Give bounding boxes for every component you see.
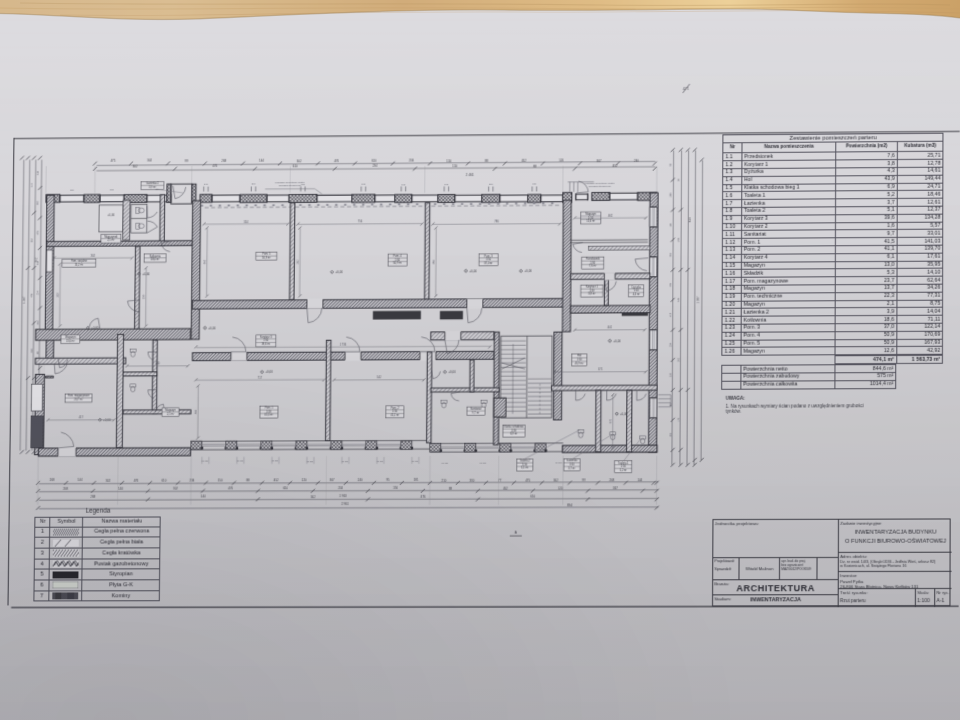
svg-text:150: 150 [447, 159, 452, 163]
svg-text:462: 462 [608, 214, 613, 218]
svg-text:150: 150 [70, 189, 74, 191]
svg-text:4,3 m²: 4,3 m² [633, 292, 641, 296]
svg-text:610: 610 [30, 348, 33, 353]
svg-text:1 387: 1 387 [22, 296, 26, 304]
svg-text:452: 452 [521, 159, 526, 163]
svg-text:Przedsionek: Przedsionek [586, 257, 601, 261]
svg-text:schodami strychowymi: schodami strychowymi [279, 184, 301, 187]
svg-text:50,9 m²: 50,9 m² [393, 261, 402, 265]
svg-text:475: 475 [111, 159, 116, 163]
svg-text:Korytarz 1: Korytarz 1 [586, 285, 598, 289]
svg-text:99: 99 [677, 178, 680, 181]
svg-text:+0,00: +0,00 [620, 412, 628, 416]
svg-text:234: 234 [190, 478, 195, 482]
svg-text:1:50: 1:50 [486, 257, 492, 261]
svg-text:542: 542 [377, 376, 382, 380]
svg-text:417: 417 [79, 416, 84, 420]
svg-text:3,8 m²: 3,8 m² [588, 292, 596, 296]
svg-text:245: 245 [532, 184, 536, 186]
svg-text:144: 144 [201, 495, 206, 499]
svg-text:90 170: 90 170 [202, 461, 209, 463]
svg-text:Magazyn: Magazyn [65, 335, 76, 339]
svg-text:302: 302 [91, 254, 96, 258]
svg-text:302: 302 [677, 357, 680, 362]
svg-text:240: 240 [634, 159, 639, 163]
svg-text:367: 367 [613, 486, 618, 490]
svg-text:268: 268 [669, 192, 672, 197]
svg-text:120: 120 [559, 159, 564, 163]
svg-text:302: 302 [147, 159, 152, 163]
svg-text:9,7 m²: 9,7 m² [472, 410, 480, 414]
svg-text:476: 476 [677, 417, 680, 422]
svg-text:1:50: 1:50 [589, 288, 595, 292]
svg-text:+0,00: +0,00 [469, 269, 477, 273]
svg-text:90 170: 90 170 [377, 461, 384, 463]
svg-text:144: 144 [30, 183, 33, 188]
svg-text:A: A [515, 531, 518, 535]
svg-text:302: 302 [106, 478, 111, 482]
svg-text:362: 362 [202, 259, 206, 264]
svg-text:99: 99 [185, 159, 189, 163]
svg-text:181: 181 [413, 478, 418, 482]
svg-text:Toaleta 1: Toaleta 1 [618, 461, 629, 465]
svg-text:1:50: 1:50 [392, 409, 398, 413]
svg-text:362: 362 [295, 259, 299, 264]
svg-text:302: 302 [30, 238, 33, 243]
svg-text:Łazienka: Łazienka [567, 459, 578, 463]
svg-text:476: 476 [420, 495, 425, 499]
svg-text:43,9 m²: 43,9 m² [575, 361, 584, 365]
svg-text:476: 476 [213, 164, 218, 168]
svg-text:88: 88 [533, 164, 537, 168]
svg-text:268: 268 [91, 495, 96, 499]
svg-text:3,7 m²: 3,7 m² [568, 466, 576, 470]
svg-text:302: 302 [553, 478, 558, 482]
svg-text:144: 144 [259, 159, 264, 163]
svg-text:Sanitariat: Sanitariat [470, 407, 481, 411]
svg-text:610: 610 [669, 312, 672, 317]
svg-text:150: 150 [452, 164, 457, 168]
svg-text:717: 717 [258, 376, 263, 380]
svg-text:245: 245 [402, 184, 406, 186]
svg-text:610: 610 [283, 486, 288, 490]
svg-text:268: 268 [63, 486, 68, 490]
svg-text:290: 290 [141, 294, 145, 299]
svg-text:756: 756 [358, 220, 363, 224]
svg-text:150: 150 [393, 486, 398, 490]
svg-text:1:50: 1:50 [263, 338, 269, 342]
svg-text:367: 367 [330, 478, 335, 482]
svg-text:1:50: 1:50 [511, 428, 517, 432]
svg-text:2,1 m²: 2,1 m² [167, 412, 174, 416]
svg-text:1:50: 1:50 [577, 357, 583, 361]
svg-text:475: 475 [525, 478, 530, 482]
svg-text:245: 245 [489, 184, 493, 186]
svg-text:245: 245 [252, 184, 256, 186]
svg-text:41,1 m²: 41,1 m² [391, 413, 400, 417]
svg-text:+0,00: +0,00 [335, 270, 343, 274]
svg-text:610: 610 [293, 164, 298, 168]
svg-text:234: 234 [36, 290, 39, 295]
svg-text:144: 144 [669, 222, 672, 227]
svg-text:476: 476 [228, 486, 233, 490]
svg-text:1 963: 1 963 [339, 494, 347, 498]
svg-text:302: 302 [297, 159, 302, 163]
svg-text:Pom. 4: Pom. 4 [393, 254, 402, 258]
svg-text:302: 302 [608, 419, 612, 424]
svg-text:362: 362 [431, 259, 435, 264]
svg-text:+0,00: +0,00 [103, 418, 111, 422]
svg-text:Kotłownia: Kotłownia [149, 254, 161, 258]
svg-text:144: 144 [118, 486, 123, 490]
svg-text:Dyżurka: Dyżurka [631, 285, 641, 289]
svg-text:88: 88 [485, 159, 489, 163]
svg-text:330: 330 [469, 478, 474, 482]
svg-text:50,9 m²: 50,9 m² [262, 256, 271, 260]
svg-text:Łazienka 2: Łazienka 2 [146, 181, 159, 185]
svg-text:210: 210 [441, 478, 446, 482]
svg-text:1:50: 1:50 [395, 258, 401, 262]
svg-text:41,5 m²: 41,5 m² [265, 413, 274, 417]
svg-text:poddasze nieuzytkowe dostep: poddasze nieuzytkowe dostep [275, 181, 305, 184]
svg-text:+0,00: +0,00 [265, 370, 273, 374]
svg-text:234: 234 [409, 159, 414, 163]
svg-text:245: 245 [204, 184, 208, 186]
svg-text:5,1 m²: 5,1 m² [521, 466, 529, 470]
svg-text:15,2 m²: 15,2 m² [75, 263, 84, 267]
svg-text:120: 120 [302, 478, 307, 482]
svg-text:90 170: 90 170 [556, 463, 563, 465]
svg-text:90 170: 90 170 [412, 461, 419, 463]
svg-text:476: 476 [134, 478, 139, 482]
svg-text:452: 452 [669, 432, 672, 437]
svg-text:poddasze nieuzytkowe dostep: poddasze nieuzytkowe dostep [585, 182, 615, 185]
svg-text:90 170: 90 170 [342, 461, 349, 463]
svg-text:90 170: 90 170 [480, 463, 487, 465]
svg-text:Hol: Hol [577, 354, 581, 358]
svg-text:6,9 m²: 6,9 m² [510, 432, 518, 436]
svg-text:234: 234 [338, 486, 343, 490]
svg-text:1:50: 1:50 [590, 260, 596, 264]
svg-text:90 170: 90 170 [442, 463, 449, 465]
svg-text:Pom. 1: Pom. 1 [265, 406, 274, 410]
svg-text:476: 476 [30, 293, 33, 298]
svg-text:786: 786 [494, 220, 499, 224]
svg-text:302: 302 [34, 257, 38, 262]
svg-text:99: 99 [582, 478, 586, 482]
svg-text:402: 402 [608, 326, 613, 330]
svg-text:+0,00: +0,00 [613, 339, 621, 343]
svg-text:88: 88 [449, 486, 453, 490]
svg-text:2 961: 2 961 [341, 502, 349, 506]
svg-text:144: 144 [78, 478, 83, 482]
svg-text:476: 476 [334, 159, 339, 163]
svg-text:452: 452 [612, 164, 617, 168]
svg-text:894: 894 [567, 503, 573, 507]
svg-text:1:50: 1:50 [569, 462, 575, 466]
svg-text:Klatka schodowa: Klatka schodowa [504, 425, 524, 429]
svg-text:Pom. socjalne: Pom. socjalne [71, 259, 88, 263]
svg-text:Magazyn: Magazyn [165, 408, 176, 412]
svg-text:452: 452 [274, 478, 279, 482]
svg-text:12,6 m²: 12,6 m² [586, 219, 595, 223]
svg-text:1:50: 1:50 [588, 215, 594, 219]
svg-text:Magazyn: Magazyn [586, 212, 597, 216]
svg-text:324: 324 [244, 220, 249, 224]
svg-text:302: 302 [193, 409, 197, 414]
svg-text:268: 268 [222, 159, 227, 163]
svg-text:+0,00: +0,00 [448, 370, 456, 374]
svg-text:+0,00: +0,00 [524, 269, 532, 273]
svg-text:88: 88 [36, 351, 39, 354]
svg-text:610: 610 [688, 217, 692, 222]
svg-text:88: 88 [246, 478, 250, 482]
svg-text:245: 245 [445, 184, 449, 186]
svg-text:1:50: 1:50 [266, 409, 272, 413]
svg-text:90 170: 90 170 [307, 461, 314, 463]
svg-text:367: 367 [596, 159, 601, 163]
svg-text:95: 95 [386, 478, 390, 482]
svg-text:+0,00: +0,00 [91, 326, 99, 330]
svg-text:302: 302 [36, 200, 39, 205]
svg-text:Pom. 2: Pom. 2 [391, 406, 400, 410]
svg-text:7,6 m²: 7,6 m² [589, 264, 597, 268]
svg-text:240: 240 [358, 478, 363, 482]
svg-text:schodami strychowymi: schodami strychowymi [589, 185, 612, 188]
svg-text:Pom. 5: Pom. 5 [262, 252, 271, 256]
svg-text:610: 610 [162, 478, 167, 482]
svg-text:90 170: 90 170 [518, 463, 525, 465]
svg-text:Magazynek: Magazynek [104, 234, 118, 238]
svg-text:268: 268 [677, 237, 680, 242]
svg-text:302: 302 [173, 486, 178, 490]
svg-text:+0,00: +0,00 [107, 213, 115, 217]
svg-text:Korytarz 3: Korytarz 3 [260, 335, 272, 339]
svg-text:268: 268 [609, 478, 614, 482]
svg-text:150: 150 [37, 320, 40, 325]
svg-text:39,6 m²: 39,6 m² [262, 342, 271, 346]
svg-text:302: 302 [55, 292, 59, 297]
svg-text:610: 610 [372, 159, 377, 163]
svg-text:1 387: 1 387 [696, 296, 700, 304]
svg-text:90 170: 90 170 [272, 461, 279, 463]
svg-text:150: 150 [669, 372, 672, 377]
svg-text:476: 476 [669, 282, 672, 287]
svg-text:240: 240 [155, 362, 160, 366]
svg-text:144: 144 [677, 297, 680, 302]
svg-text:120: 120 [558, 486, 563, 490]
svg-text:302: 302 [669, 252, 672, 257]
svg-text:5,2 m²: 5,2 m² [620, 468, 628, 472]
svg-text:234: 234 [372, 164, 377, 168]
svg-text:1:50: 1:50 [634, 288, 640, 292]
svg-text:150: 150 [110, 189, 114, 191]
svg-text:90 170: 90 170 [237, 461, 244, 463]
svg-text:452: 452 [503, 486, 508, 490]
svg-text:1 736: 1 736 [340, 343, 347, 347]
svg-text:18,6 m²: 18,6 m² [151, 258, 160, 262]
svg-text:144: 144 [37, 170, 40, 175]
svg-text:13,0 m²: 13,0 m² [66, 339, 75, 343]
svg-text:+0,00: +0,00 [208, 326, 216, 330]
svg-text:302: 302 [133, 164, 138, 168]
svg-text:144: 144 [637, 478, 642, 482]
svg-text:150: 150 [218, 478, 223, 482]
svg-text:Pom. 3: Pom. 3 [484, 254, 493, 258]
svg-text:1:50: 1:50 [621, 464, 627, 468]
svg-text:268: 268 [50, 478, 55, 482]
svg-text:2,1 m²: 2,1 m² [107, 238, 114, 242]
svg-text:371: 371 [598, 367, 603, 371]
svg-text:245: 245 [362, 184, 366, 186]
svg-text:302: 302 [311, 495, 316, 499]
svg-text:2 461: 2 461 [466, 173, 474, 177]
svg-text:234: 234 [669, 342, 672, 347]
svg-text:610: 610 [530, 495, 535, 499]
svg-text:99: 99 [669, 163, 672, 166]
svg-text:23,7 m²: 23,7 m² [74, 398, 83, 402]
svg-text:476: 476 [36, 230, 39, 235]
svg-text:Pom. magazynowe: Pom. magazynowe [68, 394, 90, 398]
svg-text:37,0 m²: 37,0 m² [484, 261, 493, 265]
